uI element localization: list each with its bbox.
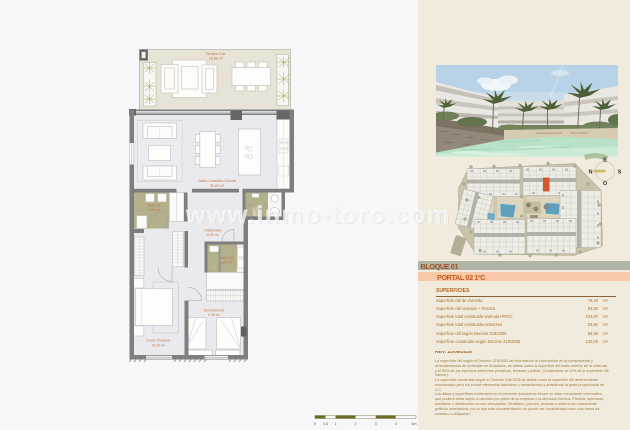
svg-text:6,00 m²: 6,00 m² <box>207 233 219 237</box>
svg-text:4,00 m²: 4,00 m² <box>148 208 160 212</box>
svg-text:Baño 01: Baño 01 <box>148 204 161 208</box>
svg-text:9,38 m²: 9,38 m² <box>208 313 220 317</box>
svg-text:Dorm. Principal: Dorm. Principal <box>146 339 169 343</box>
svg-text:Terraza Cub.: Terraza Cub. <box>206 52 227 56</box>
svg-text:0.5: 0.5 <box>323 422 328 426</box>
svg-text:4: 4 <box>395 422 397 426</box>
svg-text:2: 2 <box>355 422 357 426</box>
svg-text:1: 1 <box>335 422 337 426</box>
svg-text:www.inmo-toro.com: www.inmo-toro.com <box>185 202 450 230</box>
svg-text:3: 3 <box>375 422 377 426</box>
svg-text:E: E <box>603 158 607 164</box>
svg-text:19,20 m²: 19,20 m² <box>151 344 165 348</box>
svg-text:Salón-Comedor-Cocina: Salón-Comedor-Cocina <box>198 179 236 183</box>
svg-text:18,59 m²: 18,59 m² <box>209 57 224 61</box>
svg-text:35,03 m²: 35,03 m² <box>210 184 225 188</box>
svg-text:O: O <box>603 181 608 187</box>
svg-text:5m: 5m <box>412 422 417 426</box>
svg-text:S: S <box>618 170 622 176</box>
svg-text:0: 0 <box>314 422 316 426</box>
svg-text:Dormitorio 02: Dormitorio 02 <box>204 309 224 313</box>
svg-text:N: N <box>588 170 592 176</box>
svg-text:3,04 m²: 3,04 m² <box>221 261 233 265</box>
svg-text:Baño 02: Baño 02 <box>221 256 234 260</box>
